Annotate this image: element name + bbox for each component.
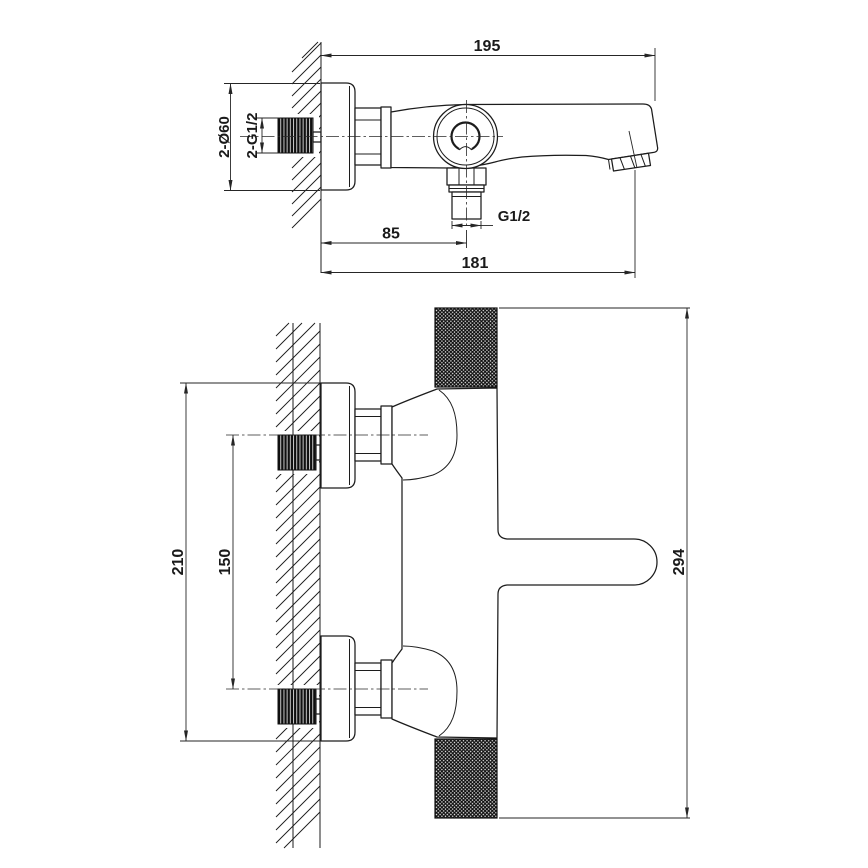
thread-shank [316, 699, 320, 714]
dim-inlet-thread: 2-G1/2 [244, 113, 280, 159]
inlet-thread-nipple [278, 689, 316, 724]
dim-label: 150 [217, 549, 234, 576]
dim-label: 181 [462, 255, 489, 272]
dim-inlet-spacing: 150 [217, 435, 234, 689]
knurled-handle [435, 739, 497, 818]
mixer-body-outline [392, 388, 657, 738]
inlet-thread-nipple [278, 118, 313, 153]
blueprint-canvas: 195 85 181 2-Ø60 2-G1/2 [0, 0, 868, 868]
dim-label: 85 [382, 226, 400, 243]
technical-drawing: 195 85 181 2-Ø60 2-G1/2 [0, 0, 868, 868]
thread-shank [316, 445, 320, 460]
thread-shank [313, 132, 321, 142]
dim-label: G1/2 [498, 208, 531, 225]
dim-label: 195 [474, 38, 501, 55]
dim-label: 294 [671, 549, 688, 576]
dim-wall-to-outlet: 85 [321, 226, 467, 249]
union-collar [381, 107, 391, 168]
dim-label: 2-Ø60 [216, 116, 233, 158]
dim-label: 210 [170, 549, 187, 576]
inlet-thread-nipple [278, 435, 316, 470]
knurled-handle [435, 308, 497, 387]
plan-view: 210 150 294 [170, 308, 690, 848]
wall-hatch [276, 323, 320, 848]
side-view: 195 85 181 2-Ø60 2-G1/2 [216, 38, 658, 278]
dim-overall-length: 195 [321, 38, 655, 101]
dim-label: 2-G1/2 [244, 113, 261, 159]
